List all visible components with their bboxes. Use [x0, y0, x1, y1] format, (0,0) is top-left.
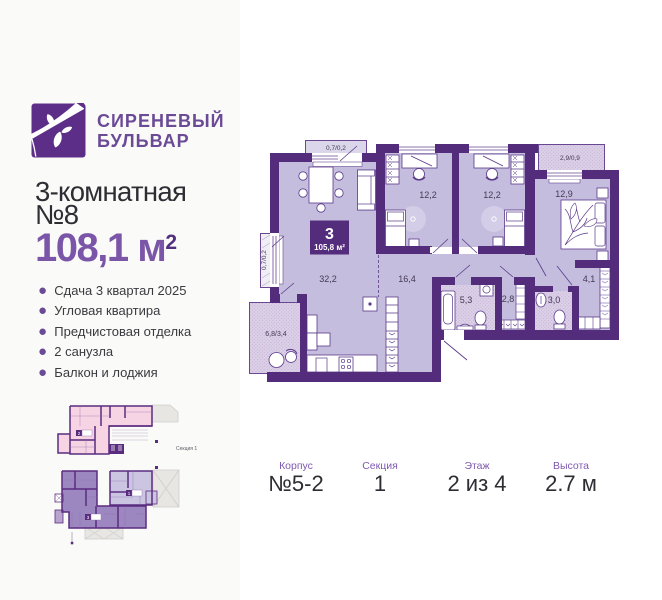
svg-text:105,8 м²: 105,8 м² [314, 243, 345, 252]
svg-text:2,8: 2,8 [502, 294, 515, 304]
svg-text:0,7/0,2: 0,7/0,2 [261, 250, 268, 270]
svg-text:2,9/0,9: 2,9/0,9 [560, 155, 580, 162]
svg-text:3: 3 [325, 226, 334, 243]
svg-text:12,2: 12,2 [483, 190, 501, 200]
svg-text:16,4: 16,4 [398, 274, 416, 284]
svg-text:32,2: 32,2 [319, 274, 337, 284]
svg-text:4,1: 4,1 [583, 274, 596, 284]
svg-text:12,9: 12,9 [555, 189, 573, 199]
svg-text:5,3: 5,3 [460, 295, 473, 305]
svg-text:6,8/3,4: 6,8/3,4 [265, 331, 287, 338]
svg-text:Секция 1: Секция 1 [176, 446, 197, 452]
svg-text:0,7/0,2: 0,7/0,2 [326, 145, 346, 152]
svg-text:12,2: 12,2 [419, 190, 437, 200]
svg-text:3,0: 3,0 [548, 295, 561, 305]
